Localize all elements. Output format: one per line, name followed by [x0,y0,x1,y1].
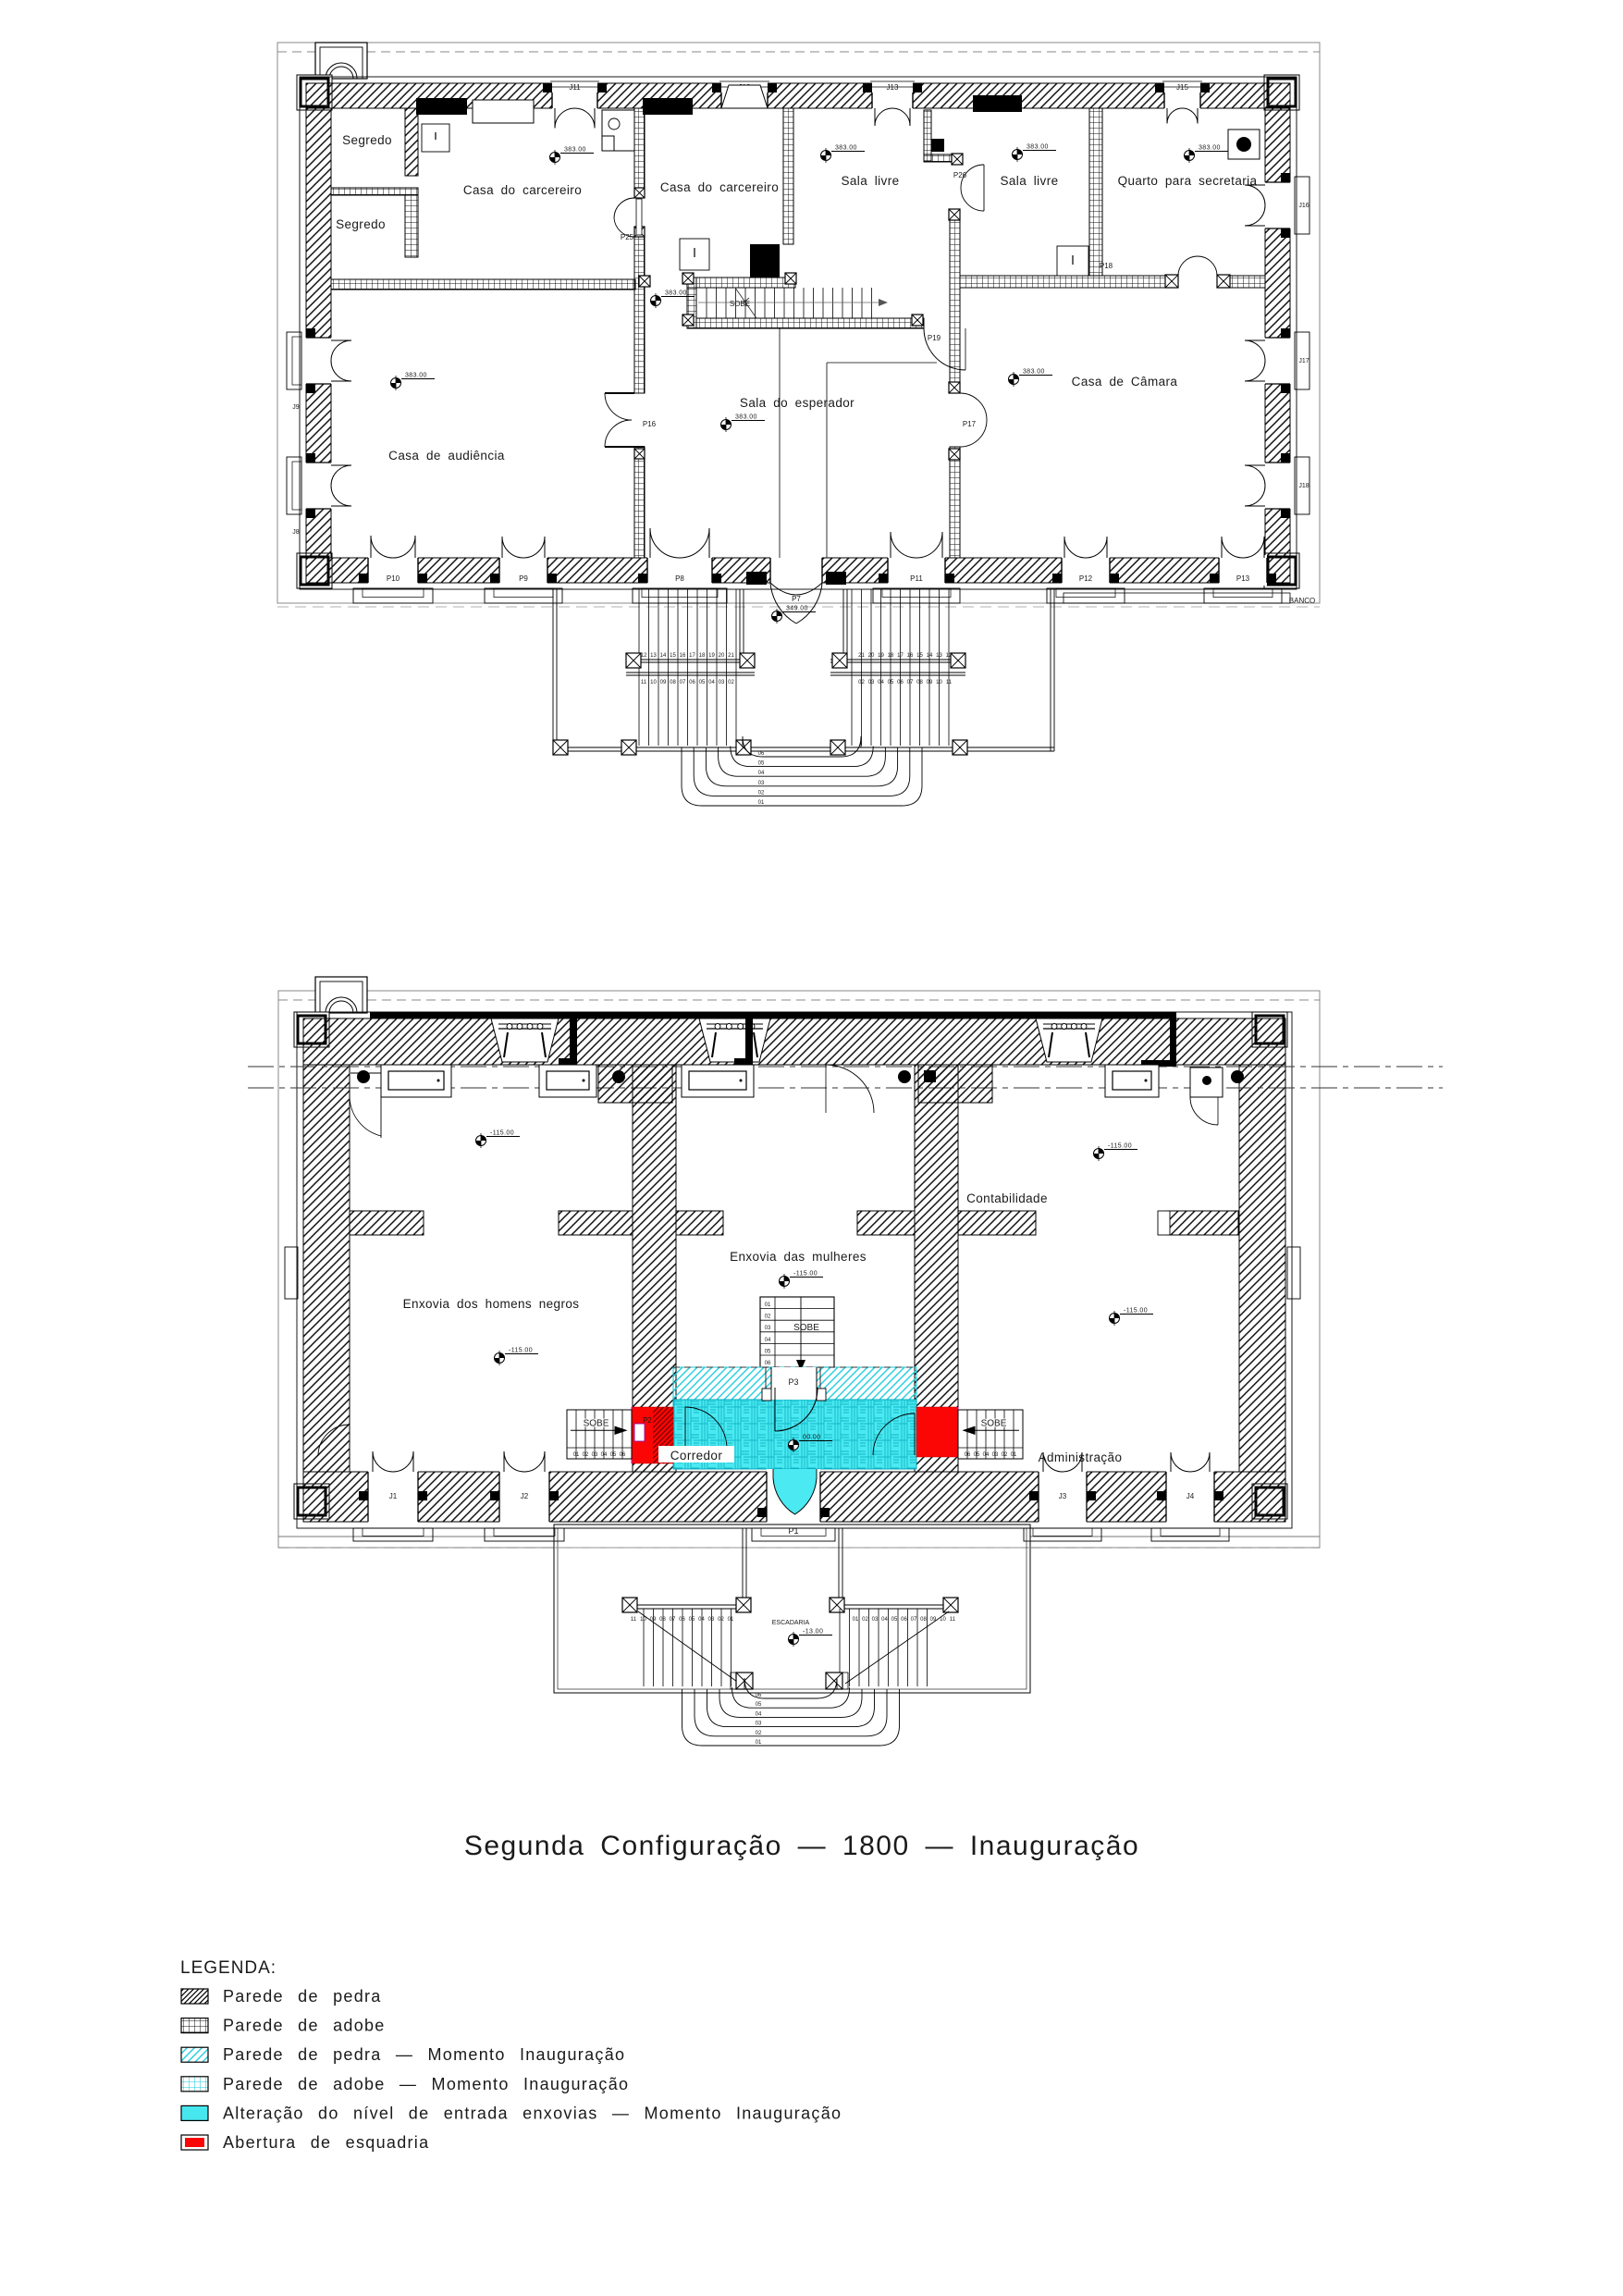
svg-text:P19: P19 [928,334,941,342]
svg-text:16: 16 [907,653,914,659]
svg-text:03: 03 [719,680,725,685]
svg-text:08: 08 [659,1617,666,1623]
svg-text:05: 05 [974,1452,980,1458]
svg-text:08: 08 [920,1617,927,1623]
svg-text:P2: P2 [643,1416,652,1425]
svg-text:04: 04 [698,1617,705,1623]
svg-text:18: 18 [888,653,894,659]
svg-text:Casa de Câmara: Casa de Câmara [1072,375,1178,389]
svg-text:05: 05 [699,680,706,685]
svg-text:Segredo: Segredo [342,133,392,147]
svg-text:P25: P25 [621,233,634,241]
svg-text:09: 09 [660,680,667,685]
svg-text:01: 01 [728,1617,734,1623]
svg-text:01: 01 [1011,1452,1017,1458]
svg-text:18: 18 [699,653,706,659]
svg-text:04: 04 [601,1452,608,1458]
svg-text:LEGENDA:: LEGENDA: [180,1958,277,1978]
svg-text:04: 04 [881,1617,888,1623]
svg-text:01: 01 [756,1740,762,1746]
svg-text:Segredo: Segredo [336,217,386,231]
svg-text:J17: J17 [1298,358,1309,364]
svg-text:-115.00: -115.00 [490,1130,514,1137]
svg-text:Parede de adobe — Momento Inau: Parede de adobe — Momento Inauguração [223,2075,629,2093]
svg-text:Parede de pedra — Momento Inau: Parede de pedra — Momento Inauguração [223,2045,625,2064]
svg-text:-115.00: -115.00 [1108,1143,1132,1150]
svg-text:03: 03 [592,1452,598,1458]
svg-text:SOBE: SOBE [981,1418,1007,1428]
svg-text:P16: P16 [643,420,657,428]
svg-text:349.00: 349.00 [786,606,808,612]
svg-text:03: 03 [992,1452,999,1458]
svg-text:21: 21 [728,653,734,659]
svg-text:Enxovia dos homens negros: Enxovia dos homens negros [403,1297,580,1311]
svg-text:ESCADARIA: ESCADARIA [772,1620,810,1626]
svg-text:20: 20 [868,653,875,659]
svg-text:P17: P17 [963,420,977,428]
svg-text:P9: P9 [519,574,528,583]
svg-text:02: 02 [858,680,865,685]
svg-text:Alteração do nível de entrada: Alteração do nível de entrada enxovias —… [223,2104,842,2122]
svg-text:07: 07 [911,1617,917,1623]
svg-text:17: 17 [897,653,904,659]
svg-text:J4: J4 [1187,1492,1195,1500]
svg-text:11: 11 [641,680,647,685]
svg-text:06: 06 [620,1452,626,1458]
svg-text:06: 06 [756,1693,762,1698]
svg-text:13: 13 [936,653,942,659]
svg-text:Administração: Administração [1039,1450,1123,1464]
svg-text:04: 04 [758,771,765,776]
svg-text:06: 06 [897,680,904,685]
svg-text:05: 05 [689,1617,695,1623]
svg-text:04: 04 [756,1711,762,1717]
svg-text:383.00: 383.00 [564,147,586,154]
svg-text:03: 03 [765,1326,771,1331]
svg-text:-13.00: -13.00 [803,1629,823,1636]
svg-text:383.00: 383.00 [665,290,687,297]
svg-text:02: 02 [756,1731,762,1736]
svg-text:-115.00: -115.00 [793,1271,818,1278]
svg-text:14: 14 [660,653,667,659]
svg-text:05: 05 [610,1452,617,1458]
svg-text:06: 06 [901,1617,907,1623]
svg-text:Enxovia das mulheres: Enxovia das mulheres [730,1250,867,1264]
svg-text:08: 08 [670,680,676,685]
svg-text:P26: P26 [953,171,967,179]
svg-text:Parede de pedra: Parede de pedra [223,1987,382,2006]
svg-text:06: 06 [965,1452,971,1458]
svg-text:02: 02 [862,1617,868,1623]
svg-text:Casa do carcereiro: Casa do carcereiro [463,183,582,197]
svg-text:09: 09 [650,1617,657,1623]
svg-text:J18: J18 [1298,483,1309,489]
svg-text:01: 01 [758,800,765,806]
svg-text:P1: P1 [788,1526,798,1536]
svg-text:05: 05 [765,1349,771,1354]
svg-text:Corredor: Corredor [670,1449,723,1463]
svg-text:19: 19 [708,653,715,659]
svg-text:Abertura de esquadria: Abertura de esquadria [223,2133,429,2152]
svg-text:02: 02 [718,1617,724,1623]
svg-text:04: 04 [878,680,884,685]
svg-text:Parede de adobe: Parede de adobe [223,2017,386,2035]
svg-text:09: 09 [927,680,933,685]
svg-text:SOBE: SOBE [730,300,750,308]
svg-text:Sala do esperador: Sala do esperador [740,396,855,410]
svg-text:07: 07 [907,680,914,685]
svg-text:02: 02 [1002,1452,1008,1458]
svg-text:SOBE: SOBE [793,1323,819,1333]
svg-text:16: 16 [680,653,686,659]
svg-text:09: 09 [930,1617,937,1623]
svg-text:J9: J9 [292,404,300,411]
svg-text:Segunda Configuração — 1800: Segunda Configuração — 1800 — Inauguraçã… [464,1831,1139,1861]
svg-text:11: 11 [950,1617,956,1623]
svg-text:J3: J3 [1059,1492,1067,1500]
svg-text:06: 06 [679,1617,685,1623]
svg-text:15: 15 [916,653,923,659]
svg-text:19: 19 [878,653,884,659]
svg-text:SOBE: SOBE [584,1418,609,1428]
svg-text:Sala livre: Sala livre [841,174,899,188]
svg-text:02: 02 [765,1315,771,1320]
svg-text:06: 06 [765,1361,771,1366]
svg-text:-115.00: -115.00 [509,1348,533,1354]
svg-text:383.00: 383.00 [1199,145,1221,152]
svg-text:01: 01 [573,1452,580,1458]
svg-text:04: 04 [708,680,715,685]
svg-text:J1: J1 [389,1492,398,1500]
svg-text:15: 15 [670,653,676,659]
svg-text:07: 07 [670,1617,676,1623]
svg-text:J8: J8 [292,529,300,536]
svg-text:J15: J15 [1176,83,1188,92]
svg-text:10: 10 [940,1617,946,1623]
svg-text:02: 02 [758,790,765,796]
svg-text:05: 05 [756,1702,762,1708]
svg-text:04: 04 [983,1452,990,1458]
svg-text:Casa do carcereiro: Casa do carcereiro [660,180,779,194]
svg-text:06: 06 [758,751,765,757]
svg-text:05: 05 [891,1617,898,1623]
svg-text:04: 04 [765,1338,771,1343]
svg-text:03: 03 [756,1722,762,1727]
svg-text:05: 05 [758,761,765,767]
svg-text:00.00: 00.00 [803,1435,821,1441]
svg-text:07: 07 [680,680,686,685]
svg-text:J11: J11 [569,83,581,92]
svg-text:383.00: 383.00 [1023,369,1045,376]
svg-text:11: 11 [631,1617,637,1623]
svg-text:20: 20 [719,653,725,659]
svg-text:J16: J16 [1298,203,1309,209]
svg-text:P12: P12 [1079,574,1093,583]
svg-text:03: 03 [758,781,765,786]
svg-text:21: 21 [858,653,865,659]
svg-text:P3: P3 [788,1377,798,1387]
svg-text:10: 10 [936,680,942,685]
svg-text:P8: P8 [675,574,684,583]
svg-text:10: 10 [640,1617,646,1623]
svg-text:14: 14 [927,653,933,659]
svg-text:Quarto para secretaria: Quarto para secretaria [1118,174,1258,188]
svg-text:Contabilidade: Contabilidade [966,1191,1048,1205]
svg-text:08: 08 [916,680,923,685]
svg-text:05: 05 [888,680,894,685]
svg-text:383.00: 383.00 [835,145,857,152]
svg-text:BANCO: BANCO [1289,597,1315,605]
svg-text:13: 13 [650,653,657,659]
svg-text:Sala livre: Sala livre [1000,174,1058,188]
svg-text:17: 17 [689,653,695,659]
svg-text:02: 02 [583,1452,589,1458]
svg-text:P7: P7 [792,595,801,603]
svg-text:383.00: 383.00 [735,414,757,421]
svg-text:11: 11 [946,680,953,685]
svg-text:03: 03 [872,1617,879,1623]
svg-text:P10: P10 [387,574,400,583]
svg-text:J2: J2 [521,1492,529,1500]
svg-text:P18: P18 [1100,262,1113,270]
svg-text:12: 12 [641,653,647,659]
svg-text:06: 06 [689,680,695,685]
svg-text:01: 01 [765,1302,771,1308]
svg-text:03: 03 [868,680,875,685]
svg-text:J13: J13 [887,83,899,92]
svg-text:383.00: 383.00 [405,373,427,379]
svg-text:02: 02 [728,680,734,685]
svg-text:10: 10 [650,680,657,685]
svg-text:Casa de audiência: Casa de audiência [388,449,505,463]
svg-text:P13: P13 [1236,574,1250,583]
svg-text:-115.00: -115.00 [1124,1308,1148,1315]
svg-text:01: 01 [853,1617,859,1623]
svg-text:P11: P11 [910,574,923,583]
svg-text:03: 03 [708,1617,715,1623]
svg-text:383.00: 383.00 [1027,144,1049,151]
